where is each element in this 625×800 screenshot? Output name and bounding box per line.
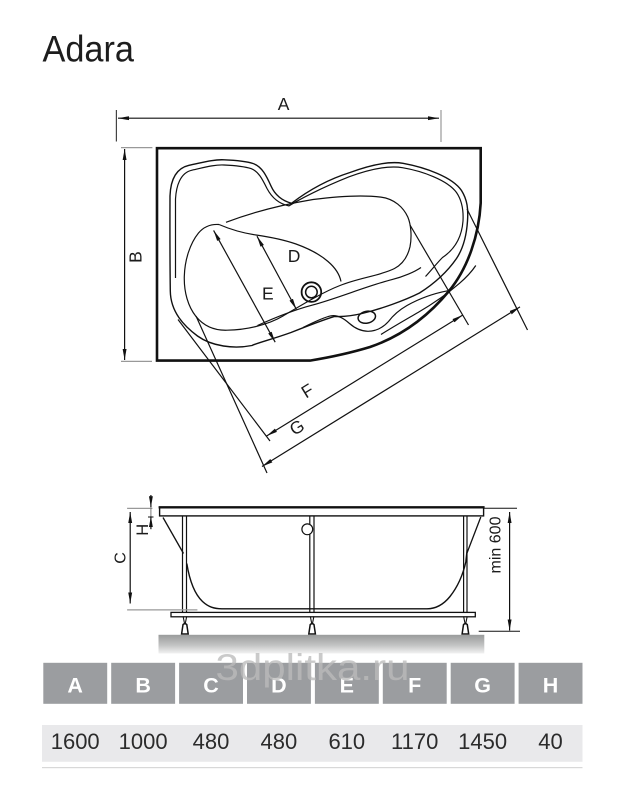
svg-text:B: B [126,251,146,263]
svg-text:Adara: Adara [43,28,135,70]
svg-text:3dplitka.ru: 3dplitka.ru [216,647,410,688]
svg-text:C: C [113,552,130,564]
svg-text:1170: 1170 [391,729,438,754]
svg-text:1000: 1000 [119,729,168,754]
svg-text:D: D [288,246,301,266]
svg-text:480: 480 [261,729,298,754]
svg-text:1450: 1450 [458,729,507,754]
svg-text:F: F [298,380,318,403]
svg-text:G: G [474,673,491,697]
svg-text:610: 610 [328,729,365,754]
svg-text:H: H [543,673,559,697]
svg-text:A: A [67,673,83,697]
svg-text:E: E [262,283,274,303]
svg-text:F: F [408,673,421,697]
svg-text:min 600: min 600 [488,516,505,573]
svg-text:480: 480 [193,729,230,754]
svg-text:A: A [278,94,290,114]
svg-text:G: G [286,415,308,439]
svg-text:B: B [135,673,151,697]
svg-text:40: 40 [538,729,562,754]
svg-text:H: H [134,524,152,536]
svg-text:1600: 1600 [51,729,100,754]
